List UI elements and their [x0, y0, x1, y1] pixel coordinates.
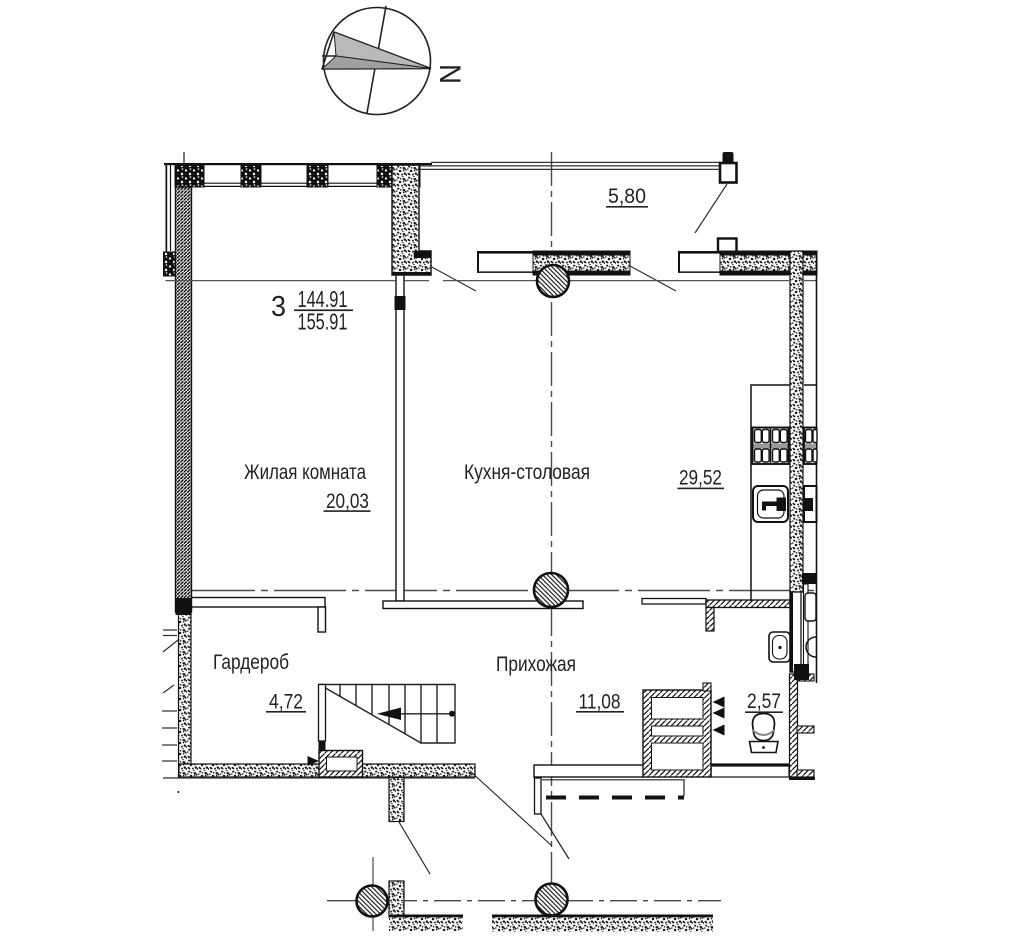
svg-text:Прихожая: Прихожая [496, 653, 576, 676]
svg-text:11,08: 11,08 [579, 691, 621, 714]
svg-text:Гардероб: Гардероб [213, 651, 289, 674]
svg-text:Кухня-столовая: Кухня-столовая [464, 461, 590, 484]
svg-text:5,80: 5,80 [608, 185, 646, 208]
svg-text:29,52: 29,52 [679, 467, 722, 490]
svg-text:N: N [433, 64, 466, 84]
svg-text:3: 3 [271, 291, 286, 323]
svg-text:20,03: 20,03 [326, 490, 369, 513]
svg-text:155.91: 155.91 [298, 309, 348, 335]
svg-text:2,57: 2,57 [747, 690, 781, 713]
svg-text:Жилая комната: Жилая комната [244, 461, 366, 484]
svg-text:4,72: 4,72 [269, 691, 303, 714]
